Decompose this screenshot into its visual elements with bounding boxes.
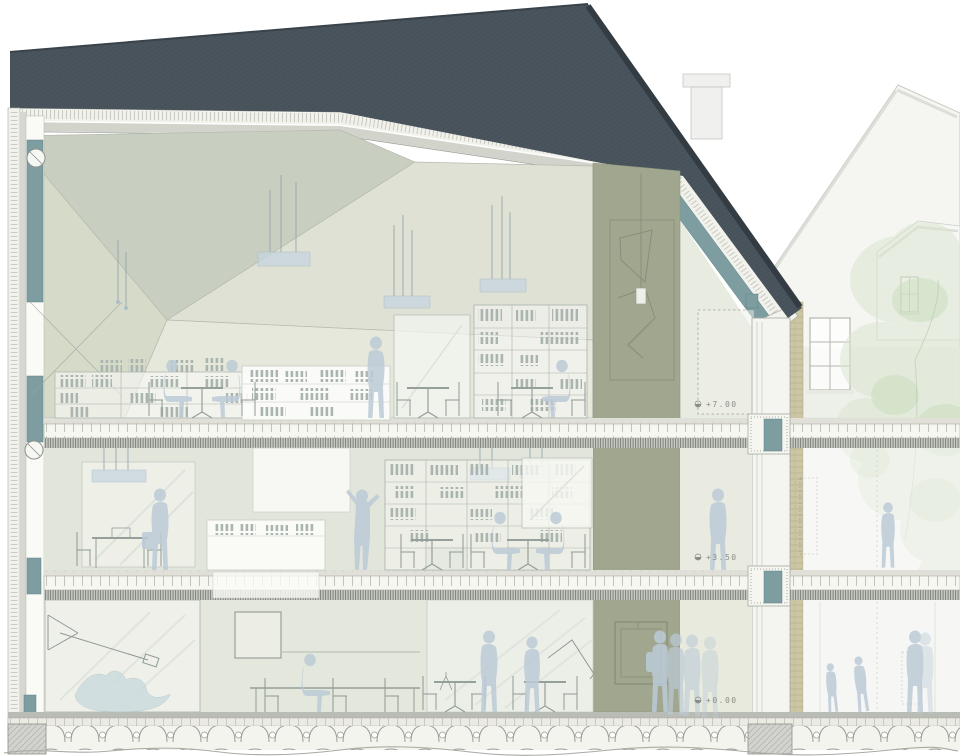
gallery-ground-tint: [803, 600, 960, 712]
void-counter-first: [207, 520, 325, 598]
floor-slab-attic: [44, 418, 960, 448]
projected-dormer-outline: [698, 310, 754, 414]
foundation-arches: [8, 726, 960, 750]
wall-picture-frame: [235, 612, 281, 658]
level-text-ground: +0.00: [706, 696, 738, 705]
bookshelf-attic-tall: [474, 305, 587, 418]
glass-cafe-ground: [427, 600, 593, 712]
chimney-cap: [683, 74, 730, 87]
eave-glazing-block: [746, 294, 758, 308]
footing-left: [8, 724, 46, 754]
section-drawing: +7.00 +3.50 +0.00: [0, 0, 960, 756]
chimney-stack: [691, 87, 722, 139]
gallery-first-tint: [803, 448, 960, 570]
ground-slab: [4, 712, 960, 755]
pendant-lamp-core: [636, 288, 646, 304]
level-text-first: +3.50: [706, 553, 738, 562]
floor-slab-first: [44, 570, 960, 600]
right-wall-section: [746, 294, 790, 740]
left-wall-board: [20, 112, 26, 738]
footing-right: [748, 724, 792, 754]
building-section-svg: +7.00 +3.50 +0.00: [0, 0, 960, 756]
level-text-attic: +7.00: [706, 400, 738, 409]
left-wall-insulation: [8, 108, 20, 738]
masonry-party-wall: [790, 302, 803, 738]
void-glass-panel: [253, 448, 350, 512]
right-wall-surface: [752, 318, 790, 740]
